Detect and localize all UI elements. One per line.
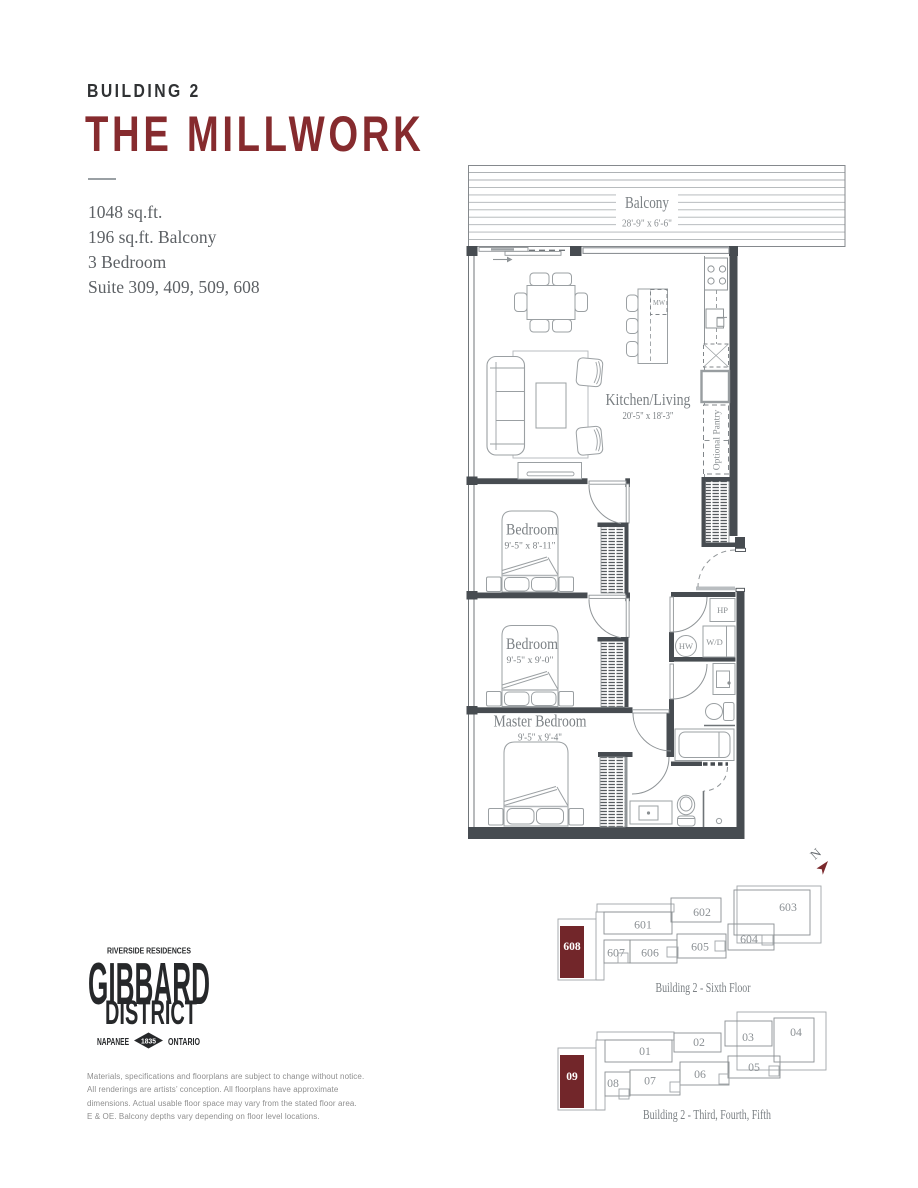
svg-text:08: 08 xyxy=(607,1076,619,1090)
svg-text:606: 606 xyxy=(641,946,659,960)
svg-text:9'-5" x 9'-0": 9'-5" x 9'-0" xyxy=(507,656,554,666)
svg-text:02: 02 xyxy=(693,1035,705,1049)
svg-text:03: 03 xyxy=(742,1030,754,1044)
svg-text:607: 607 xyxy=(607,946,625,960)
svg-text:9'-5" x 8'-11": 9'-5" x 8'-11" xyxy=(505,542,556,552)
svg-text:W/D: W/D xyxy=(706,637,723,647)
svg-text:N: N xyxy=(807,845,824,863)
svg-text:Bedroom: Bedroom xyxy=(506,636,558,653)
svg-text:601: 601 xyxy=(634,918,652,932)
svg-text:Master Bedroom: Master Bedroom xyxy=(494,712,587,731)
svg-text:HW: HW xyxy=(679,641,693,651)
svg-text:605: 605 xyxy=(691,940,709,954)
svg-text:Balcony: Balcony xyxy=(625,193,670,212)
svg-text:Bedroom: Bedroom xyxy=(506,522,558,539)
svg-text:604: 604 xyxy=(740,932,758,946)
svg-text:608: 608 xyxy=(563,941,581,953)
svg-text:28'-9" x 6'-6": 28'-9" x 6'-6" xyxy=(622,219,672,230)
svg-text:HP: HP xyxy=(717,605,728,615)
svg-text:Building 2 - Third, Fourth, Fi: Building 2 - Third, Fourth, Fifth xyxy=(643,1107,771,1122)
svg-text:MW: MW xyxy=(653,299,665,307)
svg-text:603: 603 xyxy=(779,900,797,914)
svg-text:Kitchen/Living: Kitchen/Living xyxy=(606,390,691,409)
svg-text:602: 602 xyxy=(693,905,711,919)
svg-text:Building 2 - Sixth Floor: Building 2 - Sixth Floor xyxy=(656,980,751,995)
svg-text:04: 04 xyxy=(790,1025,802,1039)
svg-text:06: 06 xyxy=(694,1067,706,1081)
svg-text:01: 01 xyxy=(639,1044,651,1058)
svg-text:9'-5" x 9'-4": 9'-5" x 9'-4" xyxy=(518,733,562,744)
svg-text:05: 05 xyxy=(748,1060,760,1074)
svg-text:07: 07 xyxy=(644,1074,656,1088)
svg-text:20'-5" x 18'-3": 20'-5" x 18'-3" xyxy=(623,411,674,422)
svg-text:09: 09 xyxy=(566,1071,578,1083)
svg-text:Optional Pantry: Optional Pantry xyxy=(713,410,723,471)
